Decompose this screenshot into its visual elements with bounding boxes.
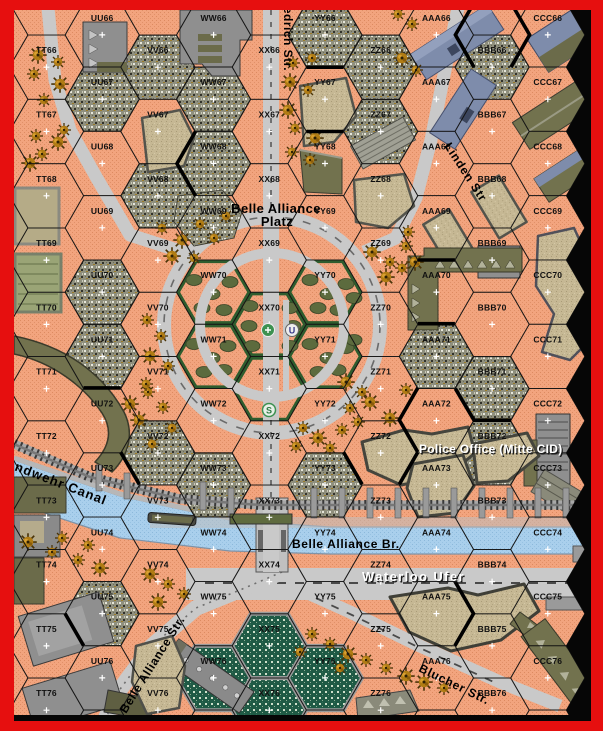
label-belle-alliance-br: Belle Alliance Br. (292, 537, 400, 551)
hex-label-UU76: UU76 (91, 656, 114, 666)
hex-label-VV72: VV72 (147, 431, 169, 441)
hex-label-UU67: UU67 (91, 77, 114, 87)
tree-icon (381, 409, 399, 427)
hex-label-ZZ73: ZZ73 (370, 495, 391, 505)
rail-platform-xx73 (230, 514, 292, 524)
tree-icon (397, 667, 415, 685)
tree-icon (301, 83, 315, 97)
hex-label-AAA74: AAA74 (422, 527, 451, 537)
hex-label-TT69: TT69 (36, 238, 57, 248)
hex-label-AAA73: AAA73 (422, 463, 451, 473)
tree-icon (305, 627, 319, 641)
hex-label-ZZ71: ZZ71 (370, 367, 391, 377)
hex-label-WW70: WW70 (200, 270, 226, 280)
tree-icon (154, 329, 168, 343)
hex-label-XX67: XX67 (259, 110, 281, 120)
svg-text:Waterloo Ufer: Waterloo Ufer (362, 569, 465, 584)
hex-label-CCC72: CCC72 (533, 399, 562, 409)
hex-label-XX69: XX69 (259, 238, 281, 248)
hex-label-CCC75: CCC75 (533, 592, 562, 602)
tree-icon (399, 239, 413, 253)
hex-label-TT72: TT72 (36, 431, 57, 441)
hex-label-AAA66: AAA66 (422, 13, 451, 23)
hex-label-VV76: VV76 (147, 688, 169, 698)
hex-label-WW75: WW75 (200, 592, 226, 602)
hex-label-BBB71: BBB71 (478, 367, 507, 377)
hex-label-ZZ67: ZZ67 (370, 110, 391, 120)
hex-label-CCC68: CCC68 (533, 142, 562, 152)
hex-label-AAA70: AAA70 (422, 270, 451, 280)
hex-label-UU70: UU70 (91, 270, 114, 280)
tree-icon (139, 377, 153, 391)
tree-icon (91, 559, 109, 577)
tree-icon (355, 385, 369, 399)
hex-label-UU75: UU75 (91, 592, 114, 602)
tree-icon (303, 153, 317, 167)
hex-label-VV73: VV73 (147, 495, 169, 505)
hex-label-WW67: WW67 (200, 77, 226, 87)
hex-label-BBB74: BBB74 (478, 560, 507, 570)
hex-label-VV67: VV67 (147, 110, 169, 120)
tree-icon (351, 415, 365, 429)
hex-label-YY67: YY67 (314, 77, 336, 87)
hex-label-BBB66: BBB66 (478, 45, 507, 55)
tree-icon (141, 347, 159, 365)
tree-icon (395, 261, 409, 275)
hex-label-WW72: WW72 (200, 399, 226, 409)
tree-icon (379, 661, 393, 675)
hex-label-ZZ70: ZZ70 (370, 302, 391, 312)
hex-label-TT71: TT71 (36, 367, 57, 377)
building-uu66 (83, 22, 127, 72)
hex-label-UU72: UU72 (91, 399, 114, 409)
hex-label-CCC71: CCC71 (533, 334, 562, 344)
hex-label-UU66: UU66 (91, 13, 114, 23)
hex-label-VV70: VV70 (147, 302, 169, 312)
tree-icon (45, 545, 59, 559)
map-canvas[interactable]: TT66TT67TT68TT69TT70TT71TT72TT73TT74TT75… (0, 0, 603, 731)
hex-label-WW68: WW68 (200, 142, 226, 152)
svg-text:Friedrich Str.: Friedrich Str. (281, 0, 295, 71)
tree-icon (281, 73, 299, 91)
platz-inner-path (283, 300, 289, 392)
tree-icon (81, 538, 95, 552)
hex-label-CCC69: CCC69 (533, 206, 562, 216)
hex-label-CCC74: CCC74 (533, 527, 562, 537)
hex-label-CCC70: CCC70 (533, 270, 562, 280)
hex-label-CCC66: CCC66 (533, 13, 562, 23)
hex-label-BBB69: BBB69 (478, 238, 507, 248)
hex-label-YY76: YY76 (314, 656, 336, 666)
tree-icon (163, 247, 181, 265)
tree-icon (55, 531, 69, 545)
hex-label-AAA75: AAA75 (422, 592, 451, 602)
s-bahn-letter: S (266, 406, 272, 416)
hex-label-AAA71: AAA71 (422, 334, 451, 344)
hex-label-XX76: XX76 (259, 688, 281, 698)
hex-label-TT73: TT73 (36, 495, 57, 505)
tree-icon (19, 533, 37, 551)
tree-icon (405, 17, 419, 31)
hex-label-YY72: YY72 (314, 399, 336, 409)
tree-icon (149, 593, 167, 611)
hex-label-WW74: WW74 (200, 527, 226, 537)
tree-icon (35, 147, 49, 161)
hex-label-CCC73: CCC73 (533, 463, 562, 473)
hex-label-BBB68: BBB68 (478, 174, 507, 184)
hex-label-VV74: VV74 (147, 560, 169, 570)
hex-label-AAA72: AAA72 (422, 399, 451, 409)
hex-label-VV68: VV68 (147, 174, 169, 184)
tree-icon (289, 439, 303, 453)
hex-label-YY74: YY74 (314, 527, 336, 537)
u-bahn-letter: U (289, 326, 296, 336)
berlin-hex-map[interactable]: TT66TT67TT68TT69TT70TT71TT72TT73TT74TT75… (0, 0, 603, 731)
hex-label-YY70: YY70 (314, 270, 336, 280)
hex-label-BBB75: BBB75 (478, 624, 507, 634)
tree-icon (399, 383, 413, 397)
hex-label-ZZ68: ZZ68 (370, 174, 391, 184)
hex-label-UU73: UU73 (91, 463, 114, 473)
hex-label-XX73: XX73 (259, 495, 281, 505)
tree-icon (173, 231, 191, 249)
hex-label-YY75: YY75 (314, 592, 336, 602)
hex-label-VV71: VV71 (147, 367, 169, 377)
tree-icon (323, 637, 337, 651)
hex-label-BBB72: BBB72 (478, 431, 507, 441)
hex-label-ZZ72: ZZ72 (370, 431, 391, 441)
tree-icon (335, 423, 349, 437)
tree-icon (383, 255, 397, 269)
tree-icon (156, 400, 170, 414)
hex-label-XX68: XX68 (259, 174, 281, 184)
svg-text:Belle Alliance Br.: Belle Alliance Br. (292, 537, 400, 551)
hex-label-ZZ66: ZZ66 (370, 45, 391, 55)
label-waterloo-ufer: Waterloo UferWaterloo Ufer (362, 569, 466, 585)
tree-icon (309, 429, 327, 447)
hex-label-BBB70: BBB70 (478, 302, 507, 312)
offmap-bottom-strip (14, 715, 591, 721)
tree-icon (359, 653, 373, 667)
hex-label-ZZ69: ZZ69 (370, 238, 391, 248)
hex-label-AAA67: AAA67 (422, 77, 451, 87)
tree-icon (401, 225, 415, 239)
tree-icon (57, 123, 71, 137)
hex-label-WW69: WW69 (200, 206, 226, 216)
hex-label-BBB73: BBB73 (478, 495, 507, 505)
tree-icon (71, 553, 85, 567)
tree-icon (27, 67, 41, 81)
tree-icon (207, 231, 221, 245)
hex-label-CCC67: CCC67 (533, 77, 562, 87)
hex-label-WW73: WW73 (200, 463, 226, 473)
hex-label-TT66: TT66 (36, 45, 57, 55)
tree-icon (51, 55, 65, 69)
hex-label-XX75: XX75 (259, 624, 281, 634)
hex-label-VV69: VV69 (147, 238, 169, 248)
hex-label-VV66: VV66 (147, 45, 169, 55)
hex-label-TT67: TT67 (36, 110, 57, 120)
hex-label-CCC76: CCC76 (533, 656, 562, 666)
hex-label-XX72: XX72 (259, 431, 281, 441)
svg-text:Police Office (Mitte CID): Police Office (Mitte CID) (419, 442, 563, 456)
tree-icon (193, 217, 207, 231)
hex-label-UU71: UU71 (91, 334, 114, 344)
tree-icon (161, 577, 175, 591)
hex-label-YY66: YY66 (314, 13, 336, 23)
svg-text:Platz: Platz (261, 214, 293, 229)
tree-icon (393, 49, 411, 67)
tree-icon (51, 75, 69, 93)
hex-label-BBB67: BBB67 (478, 110, 507, 120)
hex-label-UU74: UU74 (91, 527, 114, 537)
tree-icon (140, 313, 154, 327)
hex-label-WW66: WW66 (200, 13, 226, 23)
hex-label-WW71: WW71 (200, 334, 226, 344)
hex-label-XX71: XX71 (259, 367, 281, 377)
tree-icon (305, 51, 319, 65)
hex-label-TT68: TT68 (36, 174, 57, 184)
hex-label-TT70: TT70 (36, 302, 57, 312)
hex-label-XX70: XX70 (259, 302, 281, 312)
hex-label-YY71: YY71 (314, 334, 336, 344)
hex-label-YY73: YY73 (314, 463, 336, 473)
label-friedrich-str: Friedrich Str. (281, 0, 295, 71)
hex-label-TT76: TT76 (36, 688, 57, 698)
hex-label-UU69: UU69 (91, 206, 114, 216)
hex-label-ZZ76: ZZ76 (370, 688, 391, 698)
label-police-office: Police Office (Mitte CID)Police Office (… (419, 442, 564, 457)
hex-label-YY68: YY68 (314, 142, 336, 152)
tree-icon (37, 93, 51, 107)
hex-label-UU68: UU68 (91, 142, 114, 152)
tree-icon (361, 393, 379, 411)
hex-label-ZZ75: ZZ75 (370, 624, 391, 634)
tree-icon (177, 587, 191, 601)
tree-icon (288, 121, 302, 135)
tree-icon (377, 268, 395, 286)
tree-icon (29, 129, 43, 143)
hex-label-XX74: XX74 (259, 560, 281, 570)
hex-label-TT75: TT75 (36, 624, 57, 634)
hex-label-WW76: WW76 (200, 656, 226, 666)
tree-icon (296, 421, 310, 435)
label-belle-alliance-platz-line2: Platz (261, 214, 293, 229)
hex-label-XX66: XX66 (259, 45, 281, 55)
hex-label-AAA69: AAA69 (422, 206, 451, 216)
hex-label-TT74: TT74 (36, 560, 57, 570)
